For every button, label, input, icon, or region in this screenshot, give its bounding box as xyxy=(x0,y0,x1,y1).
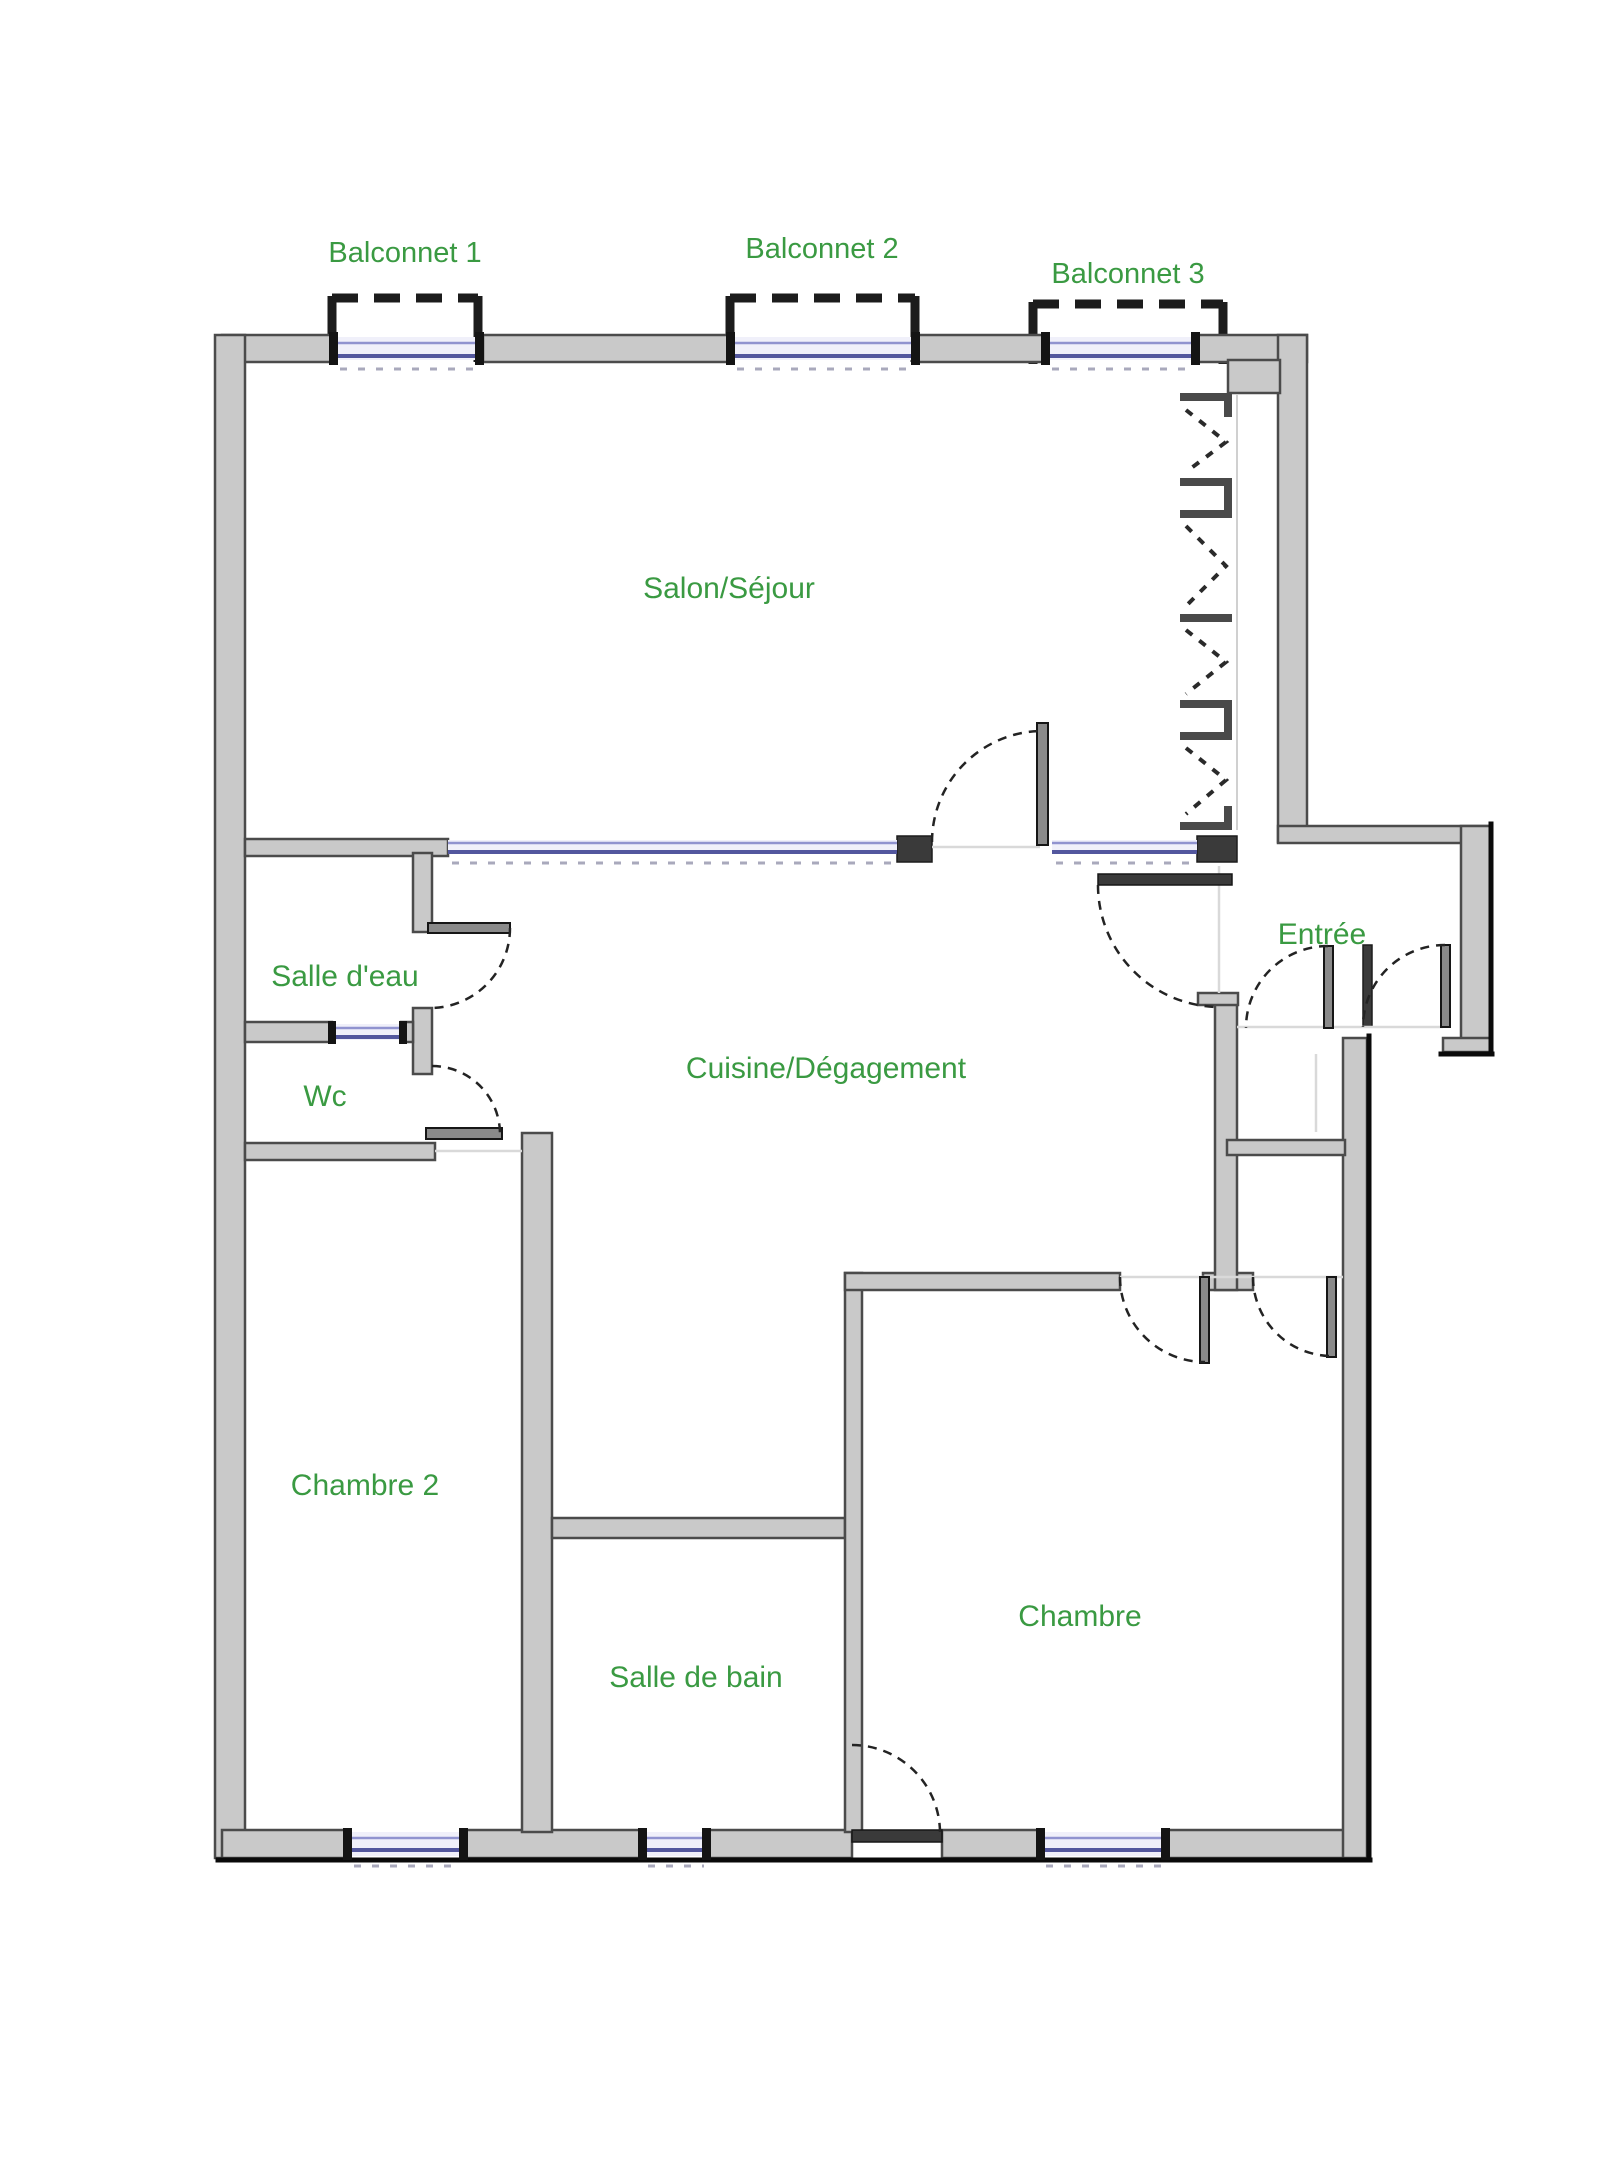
windows-top xyxy=(329,332,1200,369)
wall-left xyxy=(215,335,245,1858)
door-leaf xyxy=(1441,945,1450,1027)
door-wc xyxy=(426,1066,502,1139)
window-jamb xyxy=(329,332,338,365)
window-jamb xyxy=(638,1828,647,1860)
room-label-entree: Entrée xyxy=(1278,918,1366,951)
wall-right-upper xyxy=(1278,335,1307,842)
door-swing-arc xyxy=(1363,945,1445,1027)
door-swing-arc xyxy=(430,928,510,1008)
wall-wc-bottom xyxy=(245,1143,435,1160)
room-label-chambre-2: Chambre 2 xyxy=(291,1469,439,1502)
door-swing-arc xyxy=(432,1066,500,1134)
labels: Balconnet 1 Balconnet 2 Balconnet 3 Salo… xyxy=(271,233,1366,1694)
wall-salledeau-wc-divider xyxy=(245,1022,332,1042)
closet-shelf-bar xyxy=(1180,614,1232,622)
window-jamb xyxy=(911,332,920,365)
balcony-label-2: Balconnet 2 xyxy=(745,233,898,265)
window-jamb xyxy=(702,1828,711,1860)
door-salle-deau xyxy=(428,923,510,1008)
door-swing-arc xyxy=(1098,885,1220,1007)
door-entree-closet xyxy=(1246,946,1333,1028)
wall-salle-de-bain-right xyxy=(845,1273,862,1832)
window-jamb xyxy=(399,1021,407,1044)
closet-shelf-bar xyxy=(1180,700,1232,708)
room-label-wc: Wc xyxy=(303,1080,346,1113)
door-leaf xyxy=(1324,946,1333,1028)
closet-shelf-bar xyxy=(1224,806,1232,822)
room-label-salon-sejour: Salon/Séjour xyxy=(643,572,815,605)
glazed-partition-salon xyxy=(448,840,1197,863)
door-swing-arc xyxy=(932,731,1043,842)
wall-divider-junction xyxy=(1197,836,1237,862)
balcony-label-1: Balconnet 1 xyxy=(328,237,481,269)
closet-shelf-bar xyxy=(1180,732,1232,740)
wall-entry-extension-right xyxy=(1461,826,1490,1052)
wall-bottom xyxy=(465,1830,642,1858)
door-salon xyxy=(932,723,1048,845)
door-entrance-front xyxy=(1363,945,1450,1027)
wall-divider-jamb xyxy=(897,836,932,862)
wall-bottom xyxy=(1167,1830,1367,1858)
window-glass xyxy=(642,1832,708,1856)
window-glass xyxy=(347,1832,465,1856)
wall-closet-bottom xyxy=(1227,1140,1345,1155)
wall-bottom xyxy=(222,1830,347,1858)
window-jamb xyxy=(726,332,735,365)
folding-door-zigzag xyxy=(1186,526,1226,606)
door-swing-arc xyxy=(852,1745,940,1833)
door-cuisine-entree xyxy=(1098,874,1232,1007)
door-leaf xyxy=(1098,874,1232,885)
folding-door-zigzag xyxy=(1186,748,1226,814)
wall-chambre2-right xyxy=(522,1133,552,1832)
closet-shelf-bar xyxy=(1224,401,1232,417)
window-balconnet-1 xyxy=(329,332,484,369)
window-balconnet-3 xyxy=(1041,332,1200,369)
closet-shelf-bar xyxy=(1180,478,1232,486)
closet-shelf-bar xyxy=(1224,486,1232,510)
floor-plan-page: Balconnet 1 Balconnet 2 Balconnet 3 Salo… xyxy=(0,0,1600,2171)
window-jamb xyxy=(475,332,484,365)
closet-shelf-bar xyxy=(1180,393,1232,401)
window-glass xyxy=(1040,1832,1167,1856)
door-chambre-closet xyxy=(1253,1277,1336,1357)
wall-entry-extension-bottom xyxy=(1443,1038,1490,1052)
closet-shelf-bar xyxy=(1224,708,1232,732)
window-balconnet-2 xyxy=(726,332,920,369)
wall-salle-de-bain-top xyxy=(552,1518,845,1538)
door-chambre-bottom xyxy=(852,1745,942,1842)
room-label-cuisine-degagement: Cuisine/Dégagement xyxy=(686,1052,967,1085)
wall-mid-jamb xyxy=(413,1008,432,1074)
window-jamb xyxy=(343,1828,352,1860)
door-leaf xyxy=(428,923,510,933)
balcony-label-3: Balconnet 3 xyxy=(1051,258,1204,290)
folding-closet xyxy=(1180,393,1237,830)
door-leaf xyxy=(1200,1277,1209,1363)
door-swing-arc xyxy=(1120,1277,1205,1362)
wall-top xyxy=(483,335,730,362)
window-jamb xyxy=(459,1828,468,1860)
wall-salle-deau-right xyxy=(413,853,432,932)
wall-bottom xyxy=(708,1830,852,1858)
floor-plan-drawing: Balconnet 1 Balconnet 2 Balconnet 3 Salo… xyxy=(0,0,1600,2171)
window-jamb xyxy=(1041,332,1050,365)
wall-top xyxy=(915,335,1045,362)
door-swing-arc xyxy=(1253,1277,1332,1356)
folding-door-zigzag xyxy=(1186,630,1226,694)
window-interior-salledeau-wc xyxy=(328,1021,407,1044)
room-label-salle-deau: Salle d'eau xyxy=(271,960,419,993)
wall-chambre-top xyxy=(845,1273,1120,1290)
window-jamb xyxy=(1161,1828,1170,1860)
door-leaf xyxy=(1327,1277,1336,1357)
wall-closet-cap xyxy=(1228,360,1280,393)
closet-shelf-bar xyxy=(1180,822,1232,830)
wall-entry-extension-top xyxy=(1278,826,1490,843)
wall-bottom xyxy=(942,1830,1040,1858)
closet-shelf-bar xyxy=(1180,510,1232,518)
window-jamb xyxy=(1191,332,1200,365)
door-leaf xyxy=(426,1128,502,1139)
wall-entree-stub xyxy=(1198,993,1238,1005)
window-jamb xyxy=(1036,1828,1045,1860)
wall-right-lower xyxy=(1343,1038,1367,1858)
door-leaf xyxy=(1037,723,1048,845)
door-swing-arc xyxy=(1246,946,1328,1028)
door-chambre-entry xyxy=(1120,1277,1209,1363)
room-label-chambre: Chambre xyxy=(1018,1600,1141,1633)
folding-door-zigzag xyxy=(1186,410,1226,472)
room-label-salle-de-bain: Salle de bain xyxy=(609,1661,782,1694)
door-leaf xyxy=(852,1830,942,1842)
window-jamb xyxy=(328,1021,336,1044)
